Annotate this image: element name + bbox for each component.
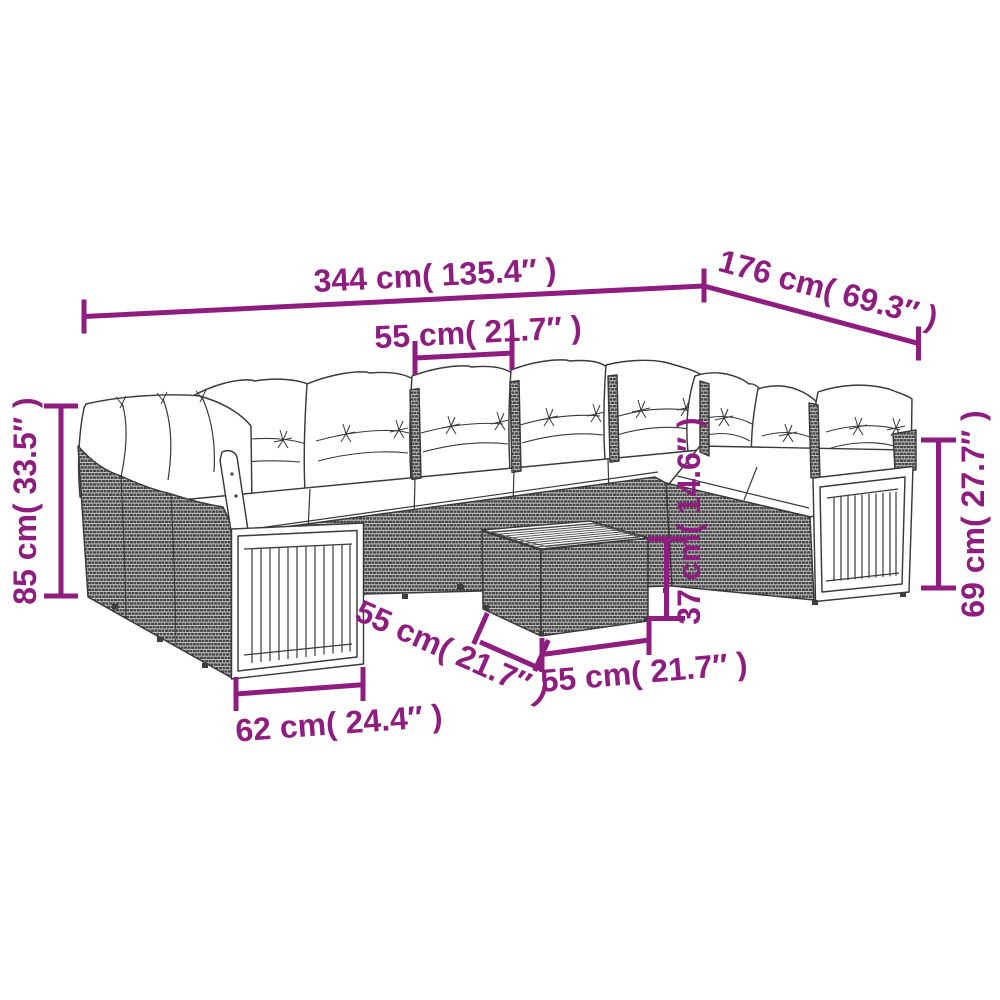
svg-text:37 cm( 14.6″ ): 37 cm( 14.6″ ) bbox=[671, 417, 707, 624]
svg-text:85 cm( 33.5″ ): 85 cm( 33.5″ ) bbox=[7, 397, 43, 604]
svg-text:69 cm( 27.7″ ): 69 cm( 27.7″ ) bbox=[955, 410, 991, 617]
